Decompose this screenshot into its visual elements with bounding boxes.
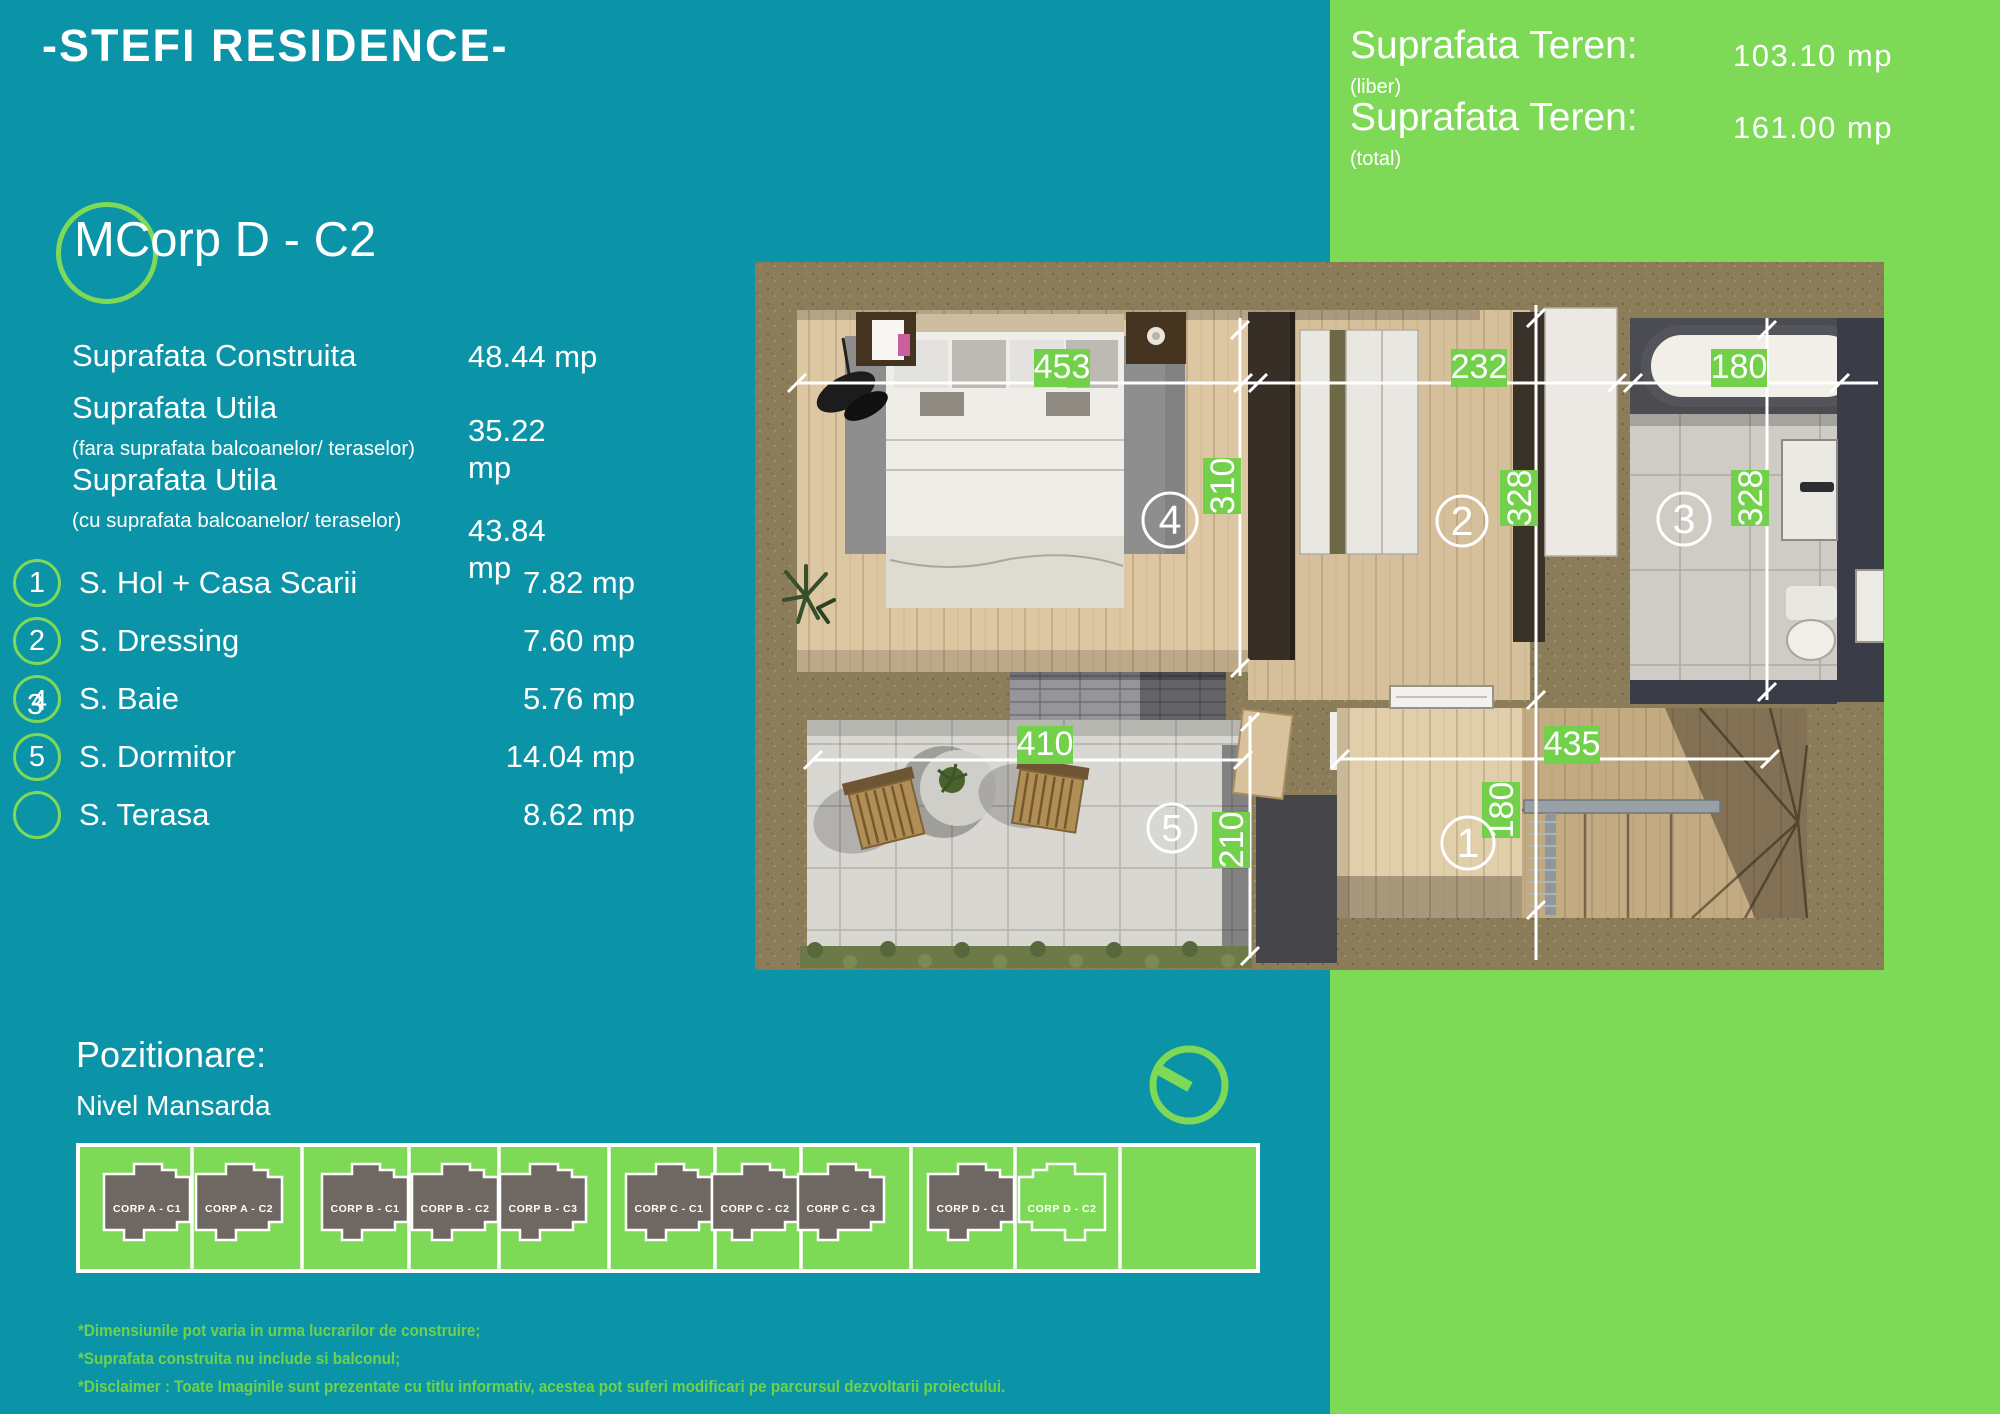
plot-label: CORP B - C1 xyxy=(331,1203,400,1215)
plot-label: CORP A - C2 xyxy=(205,1203,273,1215)
spec-utila2-label: Suprafata Utila xyxy=(72,462,277,498)
dim-328-b: 328 xyxy=(1731,470,1770,527)
svg-text:310: 310 xyxy=(1204,458,1242,515)
dim-232: 232 xyxy=(1451,348,1508,387)
spec-utila2-number: 43.84 xyxy=(468,512,546,549)
floor-plan: 453 232 180 310 328 328 410 435 210 180 … xyxy=(755,262,1884,970)
dim-410: 410 xyxy=(1017,725,1074,764)
room-3-value: 5.76 mp xyxy=(440,681,635,717)
dim-435: 435 xyxy=(1544,725,1601,764)
spec-construita-label: Suprafata Construita xyxy=(72,338,356,374)
disclaimer-line-2: *Suprafata construita nu include si balc… xyxy=(78,1350,428,1369)
room-1-badge: 1 xyxy=(13,559,61,607)
room-2-label: S. Dressing xyxy=(79,623,239,659)
svg-text:328: 328 xyxy=(1501,470,1539,527)
brand-title: -STEFI RESIDENCE- xyxy=(42,20,509,72)
room-2-value: 7.60 mp xyxy=(440,623,635,659)
spec-utila2-note: (cu suprafata balcoanelor/ teraselor) xyxy=(72,509,401,533)
plot-label: CORP A - C1 xyxy=(113,1203,181,1215)
svg-text:180: 180 xyxy=(1711,348,1768,386)
spec-utila1-note: (fara suprafata balcoanelor/ teraselor) xyxy=(72,437,415,461)
clock-dial-icon xyxy=(1146,1042,1232,1128)
corridor xyxy=(1010,672,1226,720)
room-4-value: 14.04 mp xyxy=(440,739,635,775)
land-total-note: (total) xyxy=(1350,148,1401,171)
svg-text:410: 410 xyxy=(1017,725,1074,763)
spec-utila1-unit: mp xyxy=(468,449,546,486)
plot-label: CORP C - C3 xyxy=(807,1203,876,1215)
logo-letter: M xyxy=(74,213,115,267)
spec-construita-unit: mp xyxy=(554,339,597,374)
page: -STEFI RESIDENCE- Suprafata Teren: 103.1… xyxy=(0,0,2000,1414)
disclaimer-line-1: *Dimensiunile pot varia in urma lucraril… xyxy=(78,1322,515,1341)
nightstand-right xyxy=(1126,312,1186,364)
dim-180-top: 180 xyxy=(1711,348,1768,387)
room-4-badge: 5 xyxy=(13,733,61,781)
dim-310: 310 xyxy=(1203,458,1242,515)
wardrobe-dark xyxy=(1248,312,1295,660)
land-total-value: 161.00 mp xyxy=(1733,110,1893,146)
svg-text:2: 2 xyxy=(1451,498,1474,544)
room-4-number: 5 xyxy=(29,741,45,774)
plot-label: CORP D - C1 xyxy=(937,1203,1006,1215)
room-1-label: S. Hol + Casa Scarii xyxy=(79,565,357,601)
room-2-badge: 2 xyxy=(13,617,61,665)
plot-building-highlighted xyxy=(1019,1164,1105,1240)
room-2-number: 2 xyxy=(29,625,45,658)
site-strip: CORP A - C1 CORP A - C2 CORP B - C1 CORP… xyxy=(74,1141,1262,1279)
spec-construita-value: 48.44 mp xyxy=(468,338,597,375)
disclaimer-line-3: *Disclaimer : Toate Imaginile sunt preze… xyxy=(78,1378,1086,1397)
dim-210: 210 xyxy=(1212,812,1251,869)
unit-name: Corp D - C2 xyxy=(115,213,376,267)
room-1-number: 1 xyxy=(29,567,45,600)
svg-text:210: 210 xyxy=(1213,812,1251,869)
positioning-subtitle: Nivel Mansarda xyxy=(76,1090,271,1122)
plot-label: CORP C - C2 xyxy=(721,1203,790,1215)
room-5-label: S. Terasa xyxy=(79,797,209,833)
spec-utila1-label: Suprafata Utila xyxy=(72,390,277,426)
room-3-number: 3 xyxy=(27,689,43,722)
room-5-badge xyxy=(13,791,61,839)
room-1-value: 7.82 mp xyxy=(440,565,635,601)
spec-utila1-number: 35.22 xyxy=(468,412,546,449)
land-total-label: Suprafata Teren: xyxy=(1350,96,1638,140)
land-liber-label: Suprafata Teren: xyxy=(1350,24,1638,68)
plot-label: CORP B - C2 xyxy=(421,1203,490,1215)
svg-text:1: 1 xyxy=(1457,820,1480,866)
svg-text:453: 453 xyxy=(1034,348,1091,386)
svg-text:435: 435 xyxy=(1544,725,1601,763)
svg-text:3: 3 xyxy=(1673,496,1696,542)
room-3-label: S. Baie xyxy=(79,681,179,717)
nightstand-left xyxy=(856,312,916,366)
wall-vanity xyxy=(1390,686,1493,708)
land-liber-value: 103.10 mp xyxy=(1733,38,1893,74)
plot-label: CORP B - C3 xyxy=(509,1203,578,1215)
spec-construita-number: 48.44 xyxy=(468,339,546,374)
positioning-title: Pozitionare: xyxy=(76,1034,266,1076)
spec-utila1-value: 35.22 mp xyxy=(468,412,546,486)
room-5-value: 8.62 mp xyxy=(440,797,635,833)
dim-453: 453 xyxy=(1034,348,1091,387)
plot-label: CORP C - C1 xyxy=(635,1203,704,1215)
svg-text:232: 232 xyxy=(1451,348,1508,386)
plot-label-highlighted: CORP D - C2 xyxy=(1028,1203,1097,1215)
room-3-badge: 43 xyxy=(13,675,61,723)
unit-title: MCorp D - C2 xyxy=(74,212,376,268)
svg-text:4: 4 xyxy=(1159,497,1182,543)
dim-180-bottom: 180 xyxy=(1482,782,1521,839)
svg-text:328: 328 xyxy=(1732,470,1770,527)
dim-328-a: 328 xyxy=(1500,470,1539,527)
room-4-label: S. Dormitor xyxy=(79,739,236,775)
svg-text:5: 5 xyxy=(1161,808,1182,850)
